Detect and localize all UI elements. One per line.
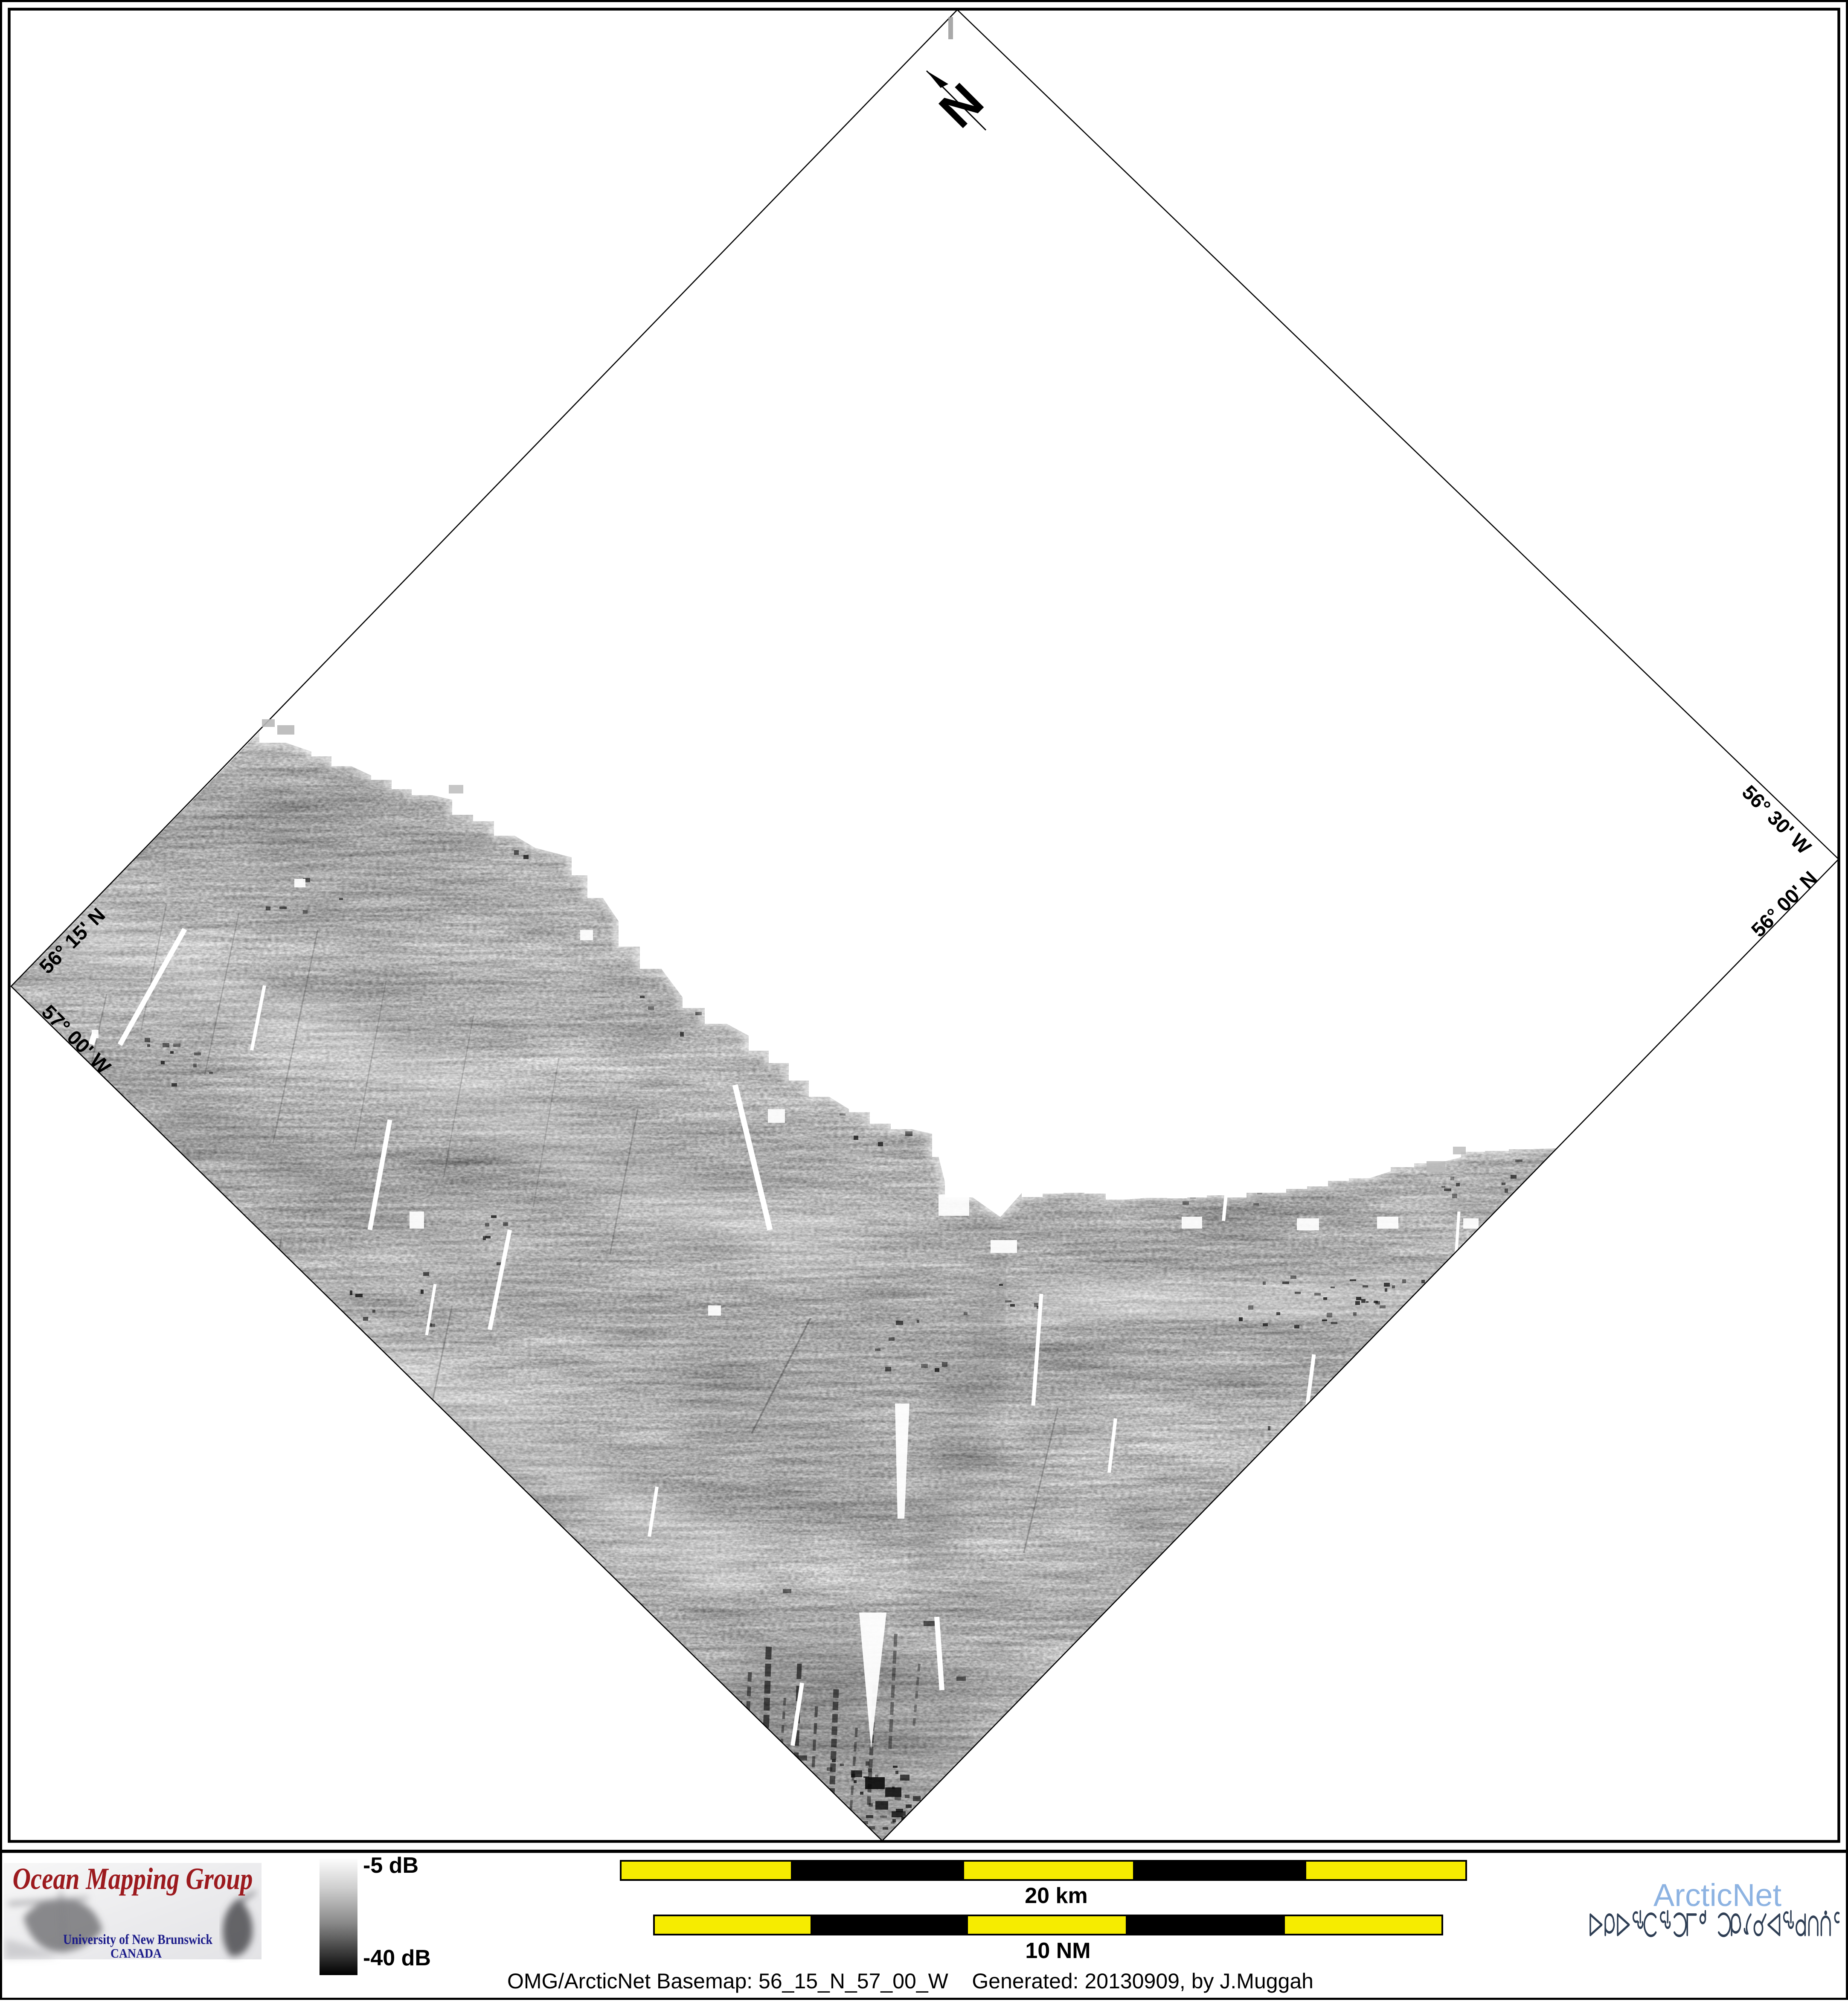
svg-text:10 NM: 10 NM <box>1025 1938 1090 1963</box>
svg-text:University of New Brunswick: University of New Brunswick <box>63 1932 213 1947</box>
svg-text:ArcticNet: ArcticNet <box>1653 1877 1782 1913</box>
svg-text:20 km: 20 km <box>1025 1883 1087 1908</box>
svg-text:-5 dB: -5 dB <box>363 1853 418 1878</box>
svg-text:Ocean Mapping Group: Ocean Mapping Group <box>13 1862 253 1896</box>
svg-text:-40 dB: -40 dB <box>363 1946 431 1970</box>
svg-text:CANADA: CANADA <box>110 1946 162 1961</box>
svg-text:OMG/ArcticNet Basemap: 56_15_N: OMG/ArcticNet Basemap: 56_15_N_57_00_W G… <box>507 1969 1313 1993</box>
